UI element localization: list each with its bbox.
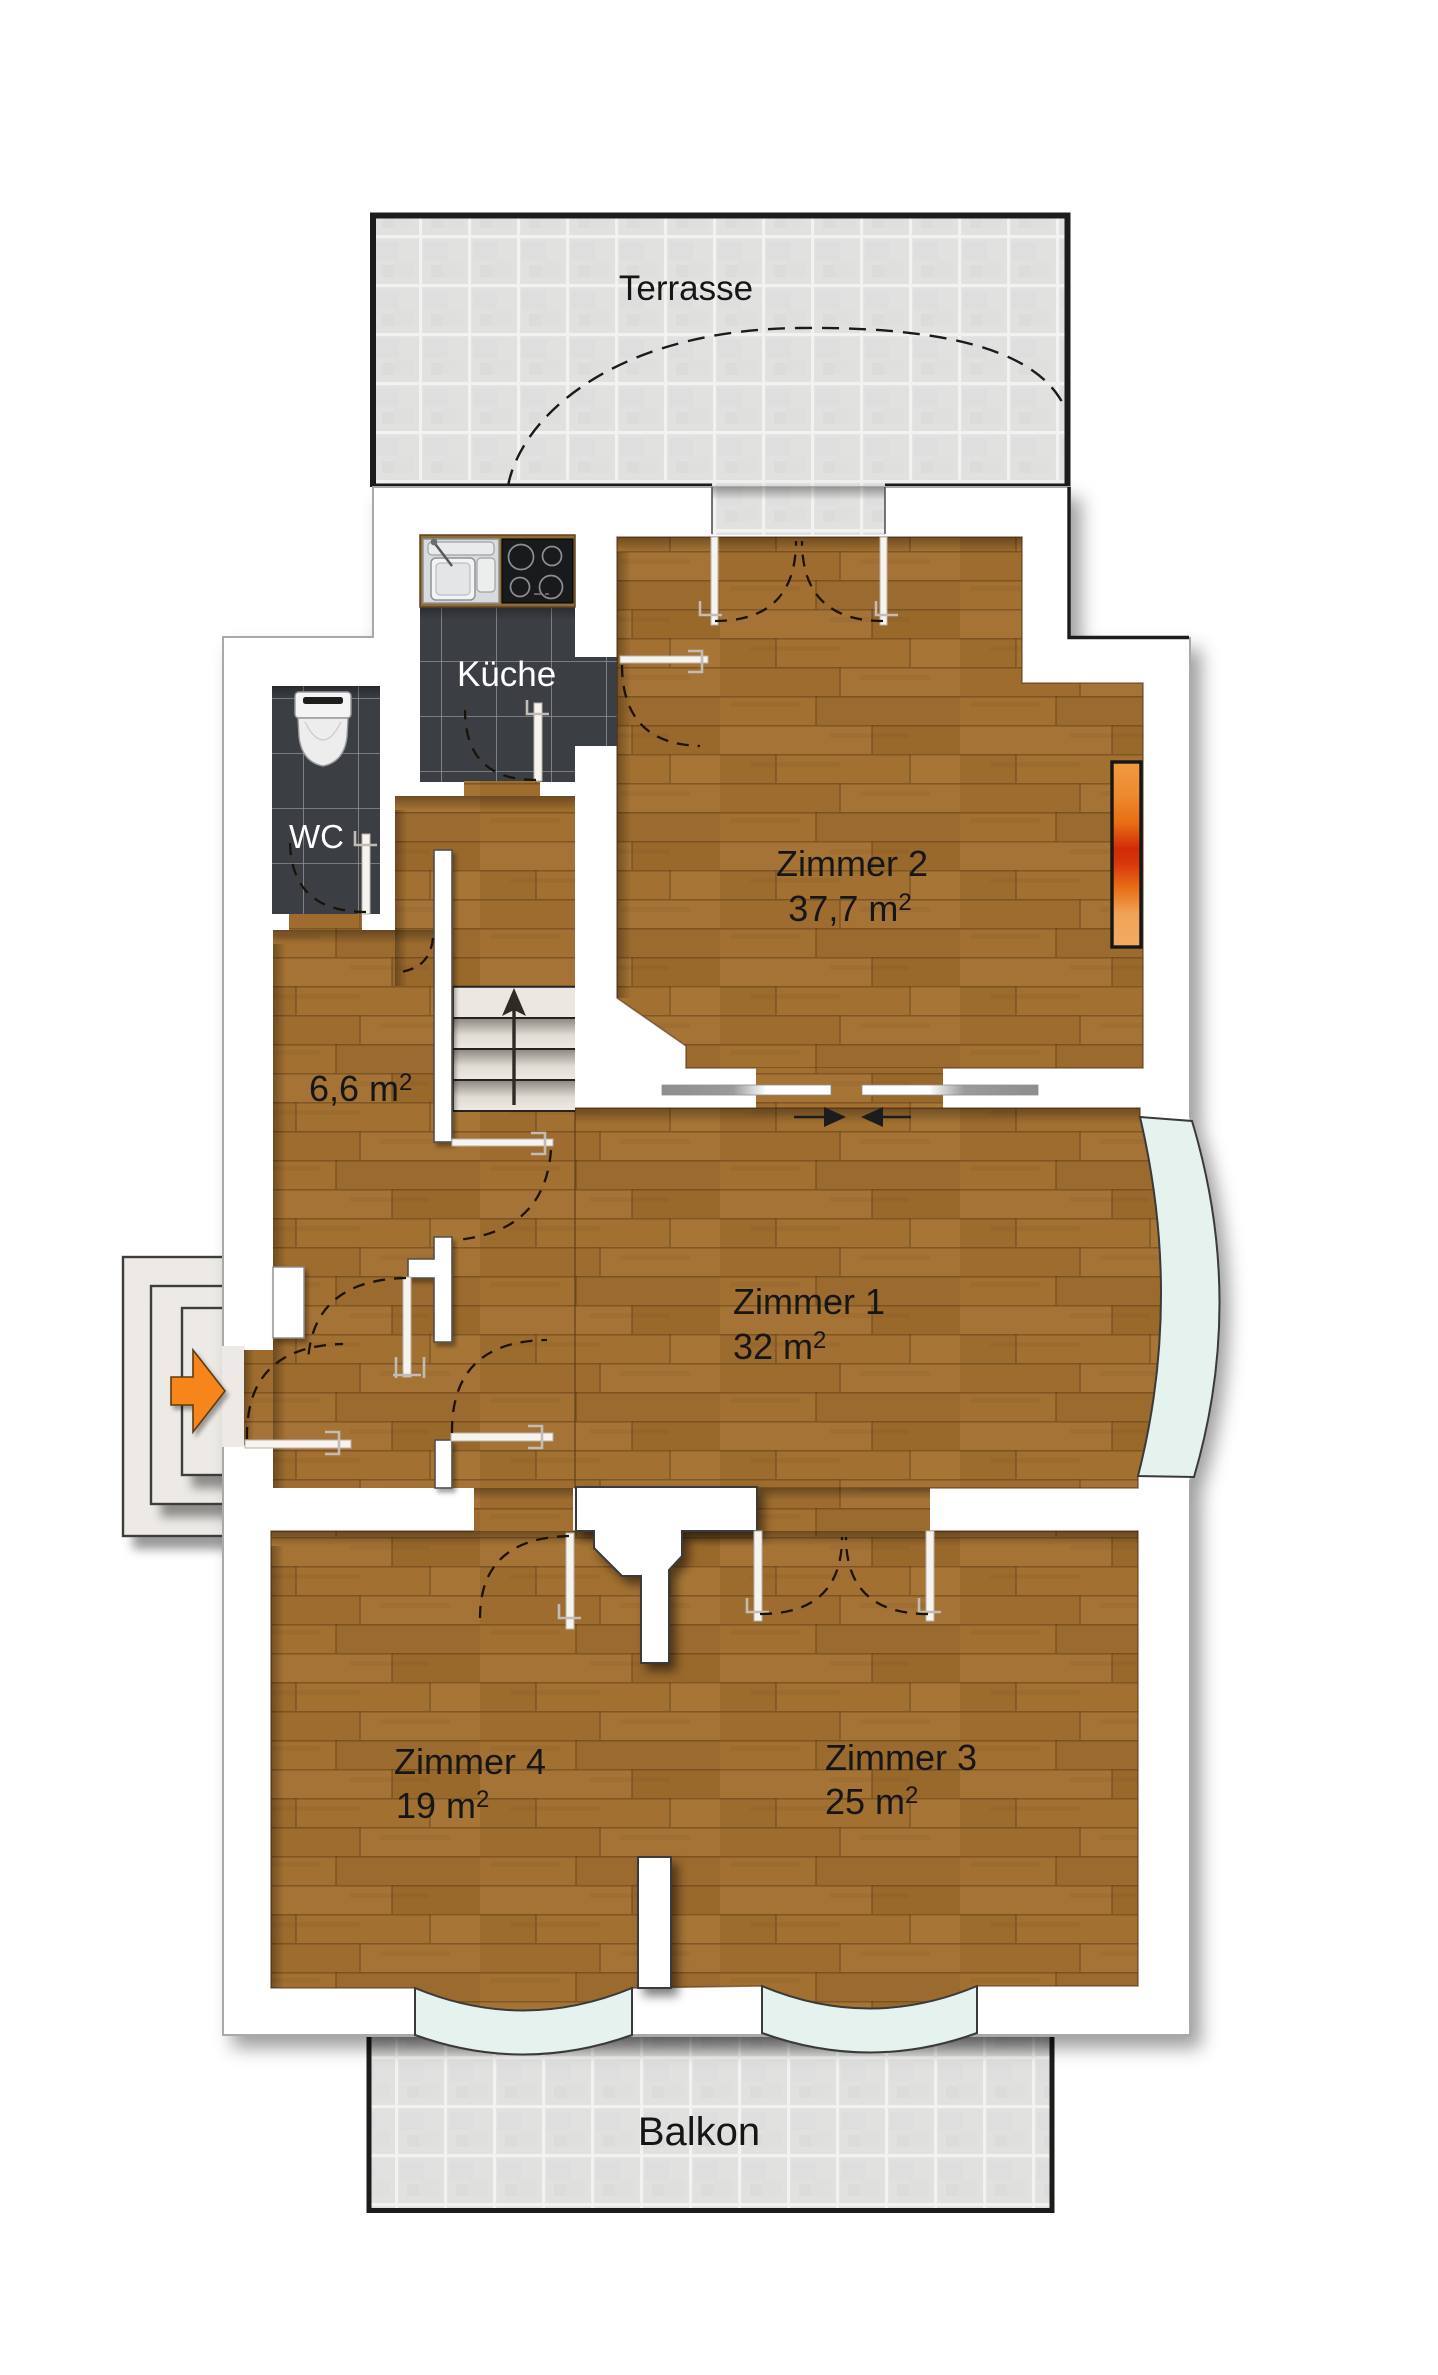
svg-text:Balkon: Balkon	[638, 2110, 760, 2154]
svg-text:WC: WC	[289, 818, 344, 855]
svg-text:6,6 m2: 6,6 m2	[309, 1068, 412, 1109]
svg-text:37,7 m2: 37,7 m2	[788, 888, 911, 929]
svg-text:Küche: Küche	[457, 655, 556, 694]
svg-text:Terrasse: Terrasse	[619, 269, 753, 308]
svg-text:Zimmer 1: Zimmer 1	[733, 1281, 885, 1322]
svg-text:Zimmer 2: Zimmer 2	[776, 843, 928, 884]
svg-text:32 m2: 32 m2	[733, 1326, 826, 1367]
svg-text:25 m2: 25 m2	[825, 1781, 918, 1822]
svg-text:19 m2: 19 m2	[396, 1785, 489, 1826]
svg-text:Zimmer 3: Zimmer 3	[825, 1737, 977, 1778]
svg-text:Zimmer 4: Zimmer 4	[394, 1741, 546, 1782]
